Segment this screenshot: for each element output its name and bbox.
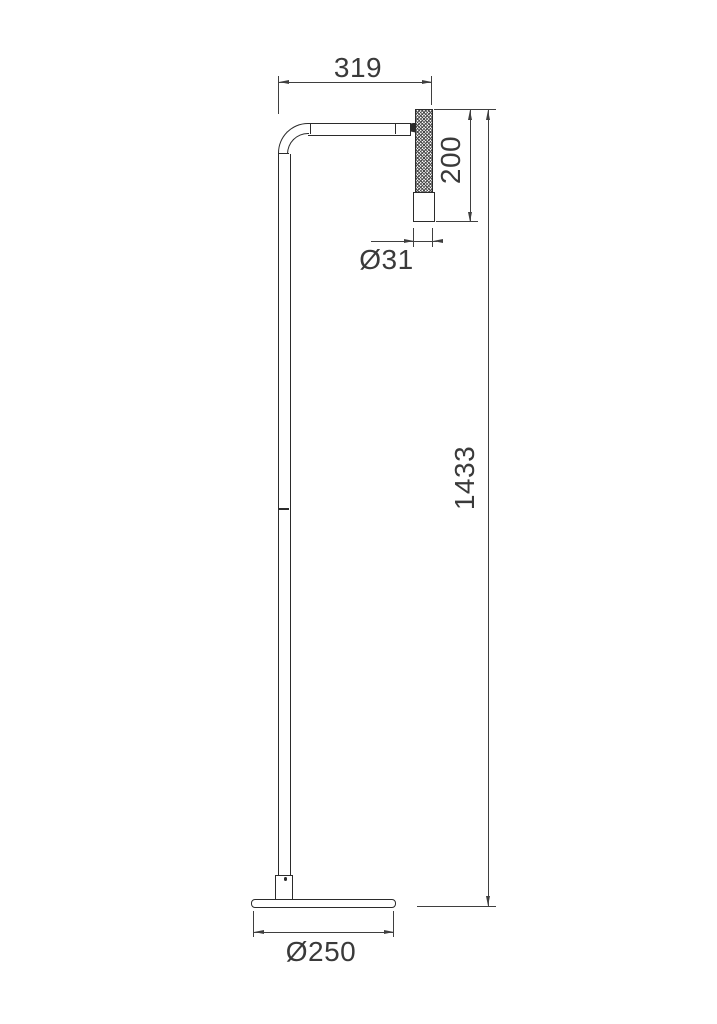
lamp-arm-joint-right — [395, 123, 396, 134]
lamp-pole-joint-mid — [278, 508, 289, 509]
dim-total-height-ext-bottom — [417, 906, 496, 907]
lamp-arm-joint-left — [310, 123, 311, 134]
dim-arrow-left-icon — [254, 930, 264, 934]
dim-arrow-right-icon — [422, 80, 432, 84]
lamp-head-knurled-cylinder — [415, 109, 433, 194]
lamp-base-plate — [251, 899, 396, 907]
dim-base-diameter-label: Ø250 — [286, 938, 357, 966]
dim-arrow-up-icon — [486, 110, 490, 120]
lamp-base-screw — [284, 877, 287, 880]
dim-arrow-down-icon — [486, 896, 490, 906]
technical-drawing-canvas: 319 200 Ø31 1433 Ø250 — [0, 0, 717, 1024]
dim-arrow-inward-left-icon — [433, 239, 443, 243]
dim-head-diameter-label: Ø31 — [359, 246, 413, 274]
dim-total-height-label: 1433 — [451, 445, 479, 509]
dim-total-height-line — [488, 110, 489, 907]
dim-arrow-left-icon — [279, 80, 289, 84]
lamp-pole-joint-upper — [278, 153, 289, 154]
dim-head-diameter-ext-right — [432, 228, 433, 247]
lamp-pole — [278, 154, 291, 876]
dim-arrow-up-icon — [468, 110, 472, 120]
dim-arm-projection-label: 319 — [334, 54, 382, 82]
dim-head-length-label: 200 — [437, 136, 465, 184]
dim-head-length-ext-bottom — [436, 221, 478, 222]
dim-base-diameter-line — [254, 932, 394, 933]
lamp-head-socket — [413, 192, 435, 222]
dim-arrow-right-icon — [384, 930, 394, 934]
dim-head-length-line — [470, 110, 471, 222]
